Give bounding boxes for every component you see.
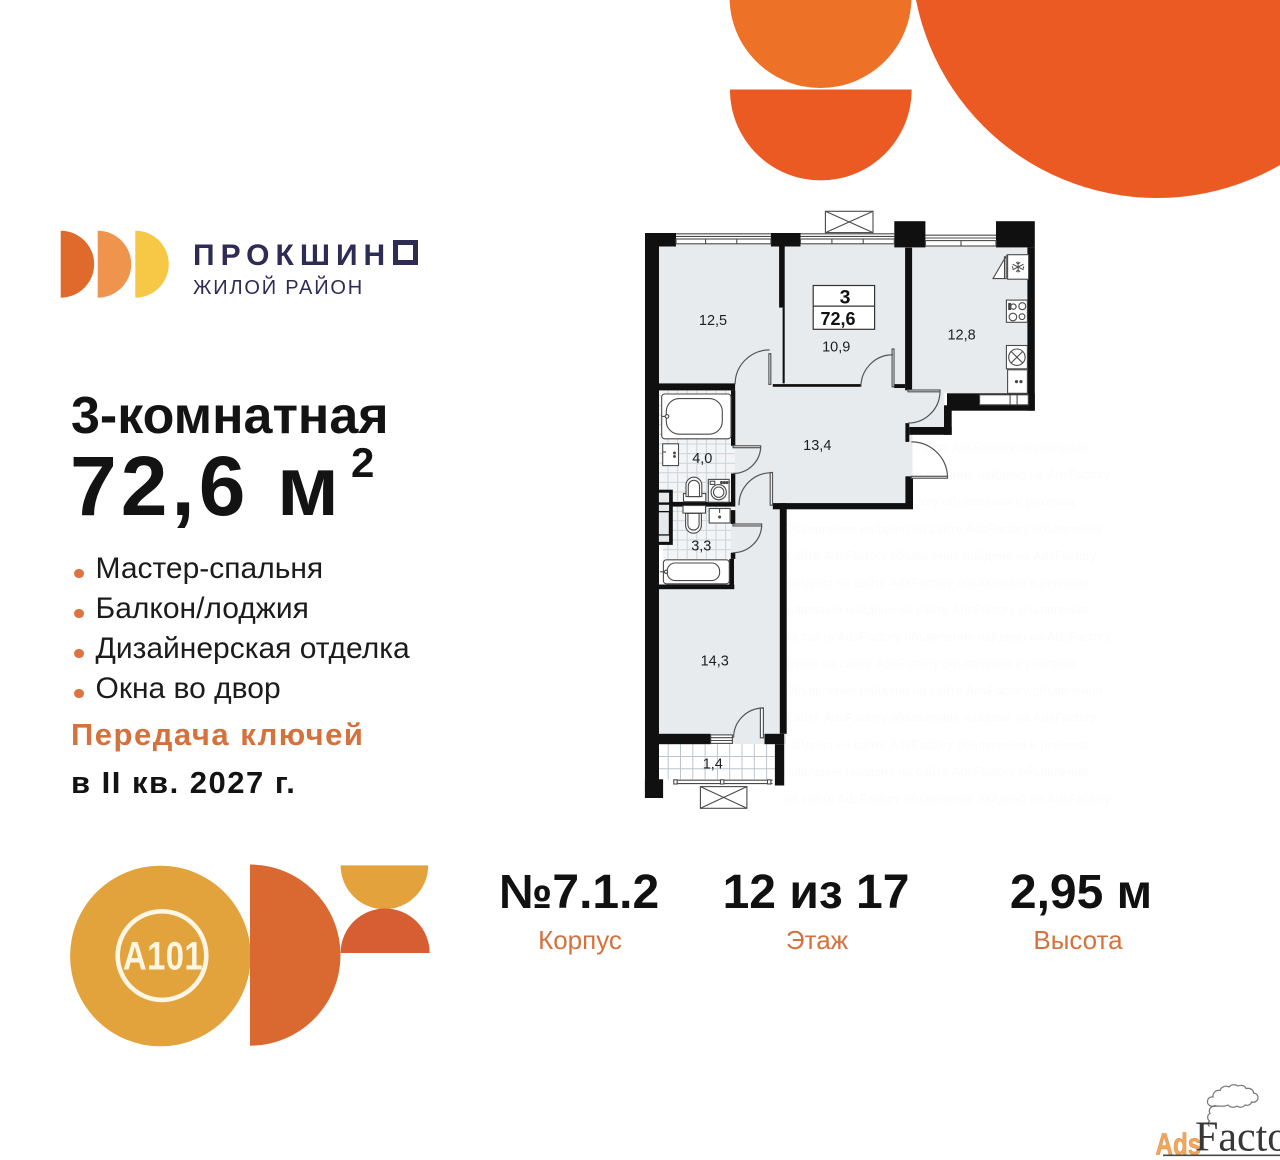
svg-text:Объявление найдено на сайте Ad: Объявление найдено на сайте AdsFactory о… bbox=[770, 603, 1088, 617]
svg-text:14,3: 14,3 bbox=[701, 654, 729, 670]
svg-text:10,9: 10,9 bbox=[822, 340, 850, 356]
svg-text:на сайте AdsFactory объявление: на сайте AdsFactory объявление найдено н… bbox=[770, 711, 1097, 725]
svg-text:3,3: 3,3 bbox=[691, 539, 711, 555]
svg-text:4,0: 4,0 bbox=[692, 451, 712, 467]
svg-text:Объявление найдено на сайте Ad: Объявление найдено на сайте AdsFactory о… bbox=[770, 765, 1088, 779]
svg-text:на сайте AdsFactory объявление: на сайте AdsFactory объявление найдено н… bbox=[784, 630, 1111, 644]
svg-text:12,5: 12,5 bbox=[699, 313, 727, 329]
svg-text:1,4: 1,4 bbox=[703, 757, 723, 773]
svg-text:A101: A101 bbox=[123, 933, 203, 978]
svg-text:72,6: 72,6 bbox=[820, 309, 855, 329]
svg-text:Factory: Factory bbox=[1195, 1115, 1280, 1160]
svg-text:на сайте AdsFactory объявление: на сайте AdsFactory объявление найдено н… bbox=[770, 549, 1097, 563]
svg-text:найдено на сайте AdsFactory об: найдено на сайте AdsFactory объявления и… bbox=[784, 738, 1089, 752]
svg-text:на сайте AdsFactory объявление: на сайте AdsFactory объявление найдено н… bbox=[784, 792, 1111, 806]
svg-text:3: 3 bbox=[840, 286, 851, 308]
svg-text:13,4: 13,4 bbox=[803, 438, 831, 454]
svg-text:найдено на сайте AdsFactory об: найдено на сайте AdsFactory объявления и… bbox=[770, 657, 1075, 671]
svg-text:найдено на сайте AdsFactory об: найдено на сайте AdsFactory объявления и… bbox=[784, 576, 1089, 590]
svg-text:Объявление найдено на сайте Ad: Объявление найдено на сайте AdsFactory о… bbox=[784, 522, 1102, 536]
svg-text:12,8: 12,8 bbox=[947, 328, 975, 344]
svg-text:Объявление найдено на сайте Ad: Объявление найдено на сайте AdsFactory о… bbox=[784, 684, 1102, 698]
